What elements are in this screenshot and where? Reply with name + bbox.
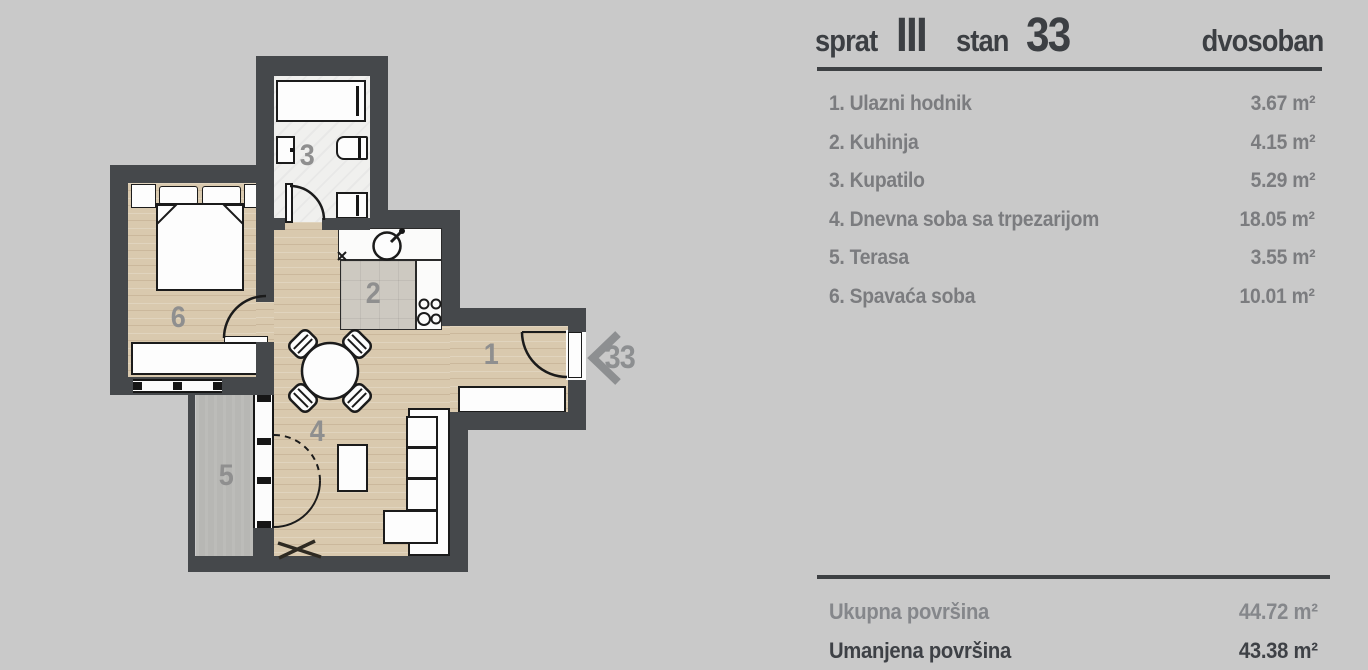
wall-bathroom-top	[256, 56, 388, 76]
room-label-entry: 1	[484, 340, 498, 370]
bathtub-faucet	[356, 86, 359, 116]
sofa-cushion-3	[406, 478, 438, 511]
room-area: 18.05 m²	[1240, 208, 1315, 232]
glass-mullion	[257, 521, 271, 528]
room-row: 5. Terasa 3.55 m²	[817, 239, 1315, 278]
bedroom-window	[133, 379, 222, 393]
totals-divider	[817, 575, 1330, 579]
wall-bedroom-left	[110, 165, 128, 395]
sofa-cushion-1	[406, 416, 438, 448]
totals: Ukupna površina 44.72 m² Umanjena površi…	[817, 592, 1318, 670]
room-name: 2. Kuhinja	[817, 131, 919, 155]
wall-bedroom-top	[110, 165, 274, 183]
room-area: 4.15 m²	[1250, 131, 1315, 155]
wall-living-right	[450, 412, 468, 572]
washing-machine-knob	[290, 148, 294, 152]
room-name: 3. Kupatilo	[817, 169, 925, 193]
room-label-living: 4	[310, 417, 324, 447]
floor-number: III	[896, 8, 926, 63]
sofa-chaise	[383, 510, 438, 544]
room-row: 1. Ulazni hodnik 3.67 m²	[817, 85, 1315, 124]
floor-plan: 3 6 2 1 4 5 33	[0, 0, 700, 665]
kitchen-counter-top	[338, 228, 442, 260]
wall-bathroom-right	[370, 56, 388, 222]
room-label-bathroom: 3	[300, 141, 314, 171]
room-name: 4. Dnevna soba sa trpezarijom	[817, 208, 1099, 232]
room-label-terrace: 5	[219, 461, 233, 491]
wall-bathroom-bottom-right	[322, 218, 370, 230]
wall-entry-right-upper	[568, 308, 586, 332]
total-net-row: Umanjena površina 43.38 m²	[817, 631, 1318, 670]
window-frame-mark	[173, 382, 182, 390]
total-gross-row: Ukupna površina 44.72 m²	[817, 592, 1318, 631]
floor-label: sprat	[815, 23, 877, 59]
total-gross-value: 44.72 m²	[1239, 599, 1318, 625]
wall-kitchen-right	[442, 210, 460, 310]
room-name: 1. Ulazni hodnik	[817, 92, 972, 116]
plan-header: sprat III stan 33 dvosoban	[815, 8, 1323, 64]
room-row: 4. Dnevna soba sa trpezarijom 18.05 m²	[817, 201, 1315, 240]
wall-bathroom-bottom-left	[274, 218, 285, 230]
room-label-kitchen: 2	[366, 279, 380, 309]
terrace-glass-door	[253, 395, 274, 528]
entrance-unit-number: 33	[605, 341, 635, 373]
room-area: 10.01 m²	[1240, 285, 1315, 309]
room-area: 3.67 m²	[1250, 92, 1315, 116]
total-gross-label: Ukupna površina	[817, 599, 989, 625]
double-bed	[156, 203, 244, 291]
apartment-type: dvosoban	[1201, 23, 1323, 59]
bedroom-wardrobe	[131, 342, 262, 375]
wall-glass-lower	[253, 528, 274, 556]
header-divider	[817, 67, 1322, 71]
window-frame-mark	[133, 382, 142, 390]
wall-terrace-left	[188, 395, 195, 556]
nightstand-left	[131, 184, 156, 208]
room-list: 1. Ulazni hodnik 3.67 m² 2. Kuhinja 4.15…	[817, 85, 1315, 316]
bathtub	[276, 80, 366, 122]
kitchen-counter-right	[416, 260, 442, 330]
room-row: 3. Kupatilo 5.29 m²	[817, 162, 1315, 201]
wall-entry-top	[442, 308, 586, 326]
total-net-value: 43.38 m²	[1239, 638, 1318, 664]
unit-number: 33	[1026, 8, 1069, 63]
window-frame-mark	[213, 382, 222, 390]
bathroom-sink	[336, 192, 368, 219]
wall-bottom	[188, 556, 468, 572]
glass-mullion	[257, 438, 271, 445]
room-area: 3.55 m²	[1250, 246, 1315, 270]
glass-mullion	[257, 477, 271, 484]
bathroom-sink-line	[356, 195, 359, 216]
sofa-cushion-2	[406, 447, 438, 479]
unit-label: stan	[956, 23, 1009, 59]
toilet	[336, 136, 368, 160]
room-row: 2. Kuhinja 4.15 m²	[817, 124, 1315, 163]
room-area: 5.29 m²	[1250, 169, 1315, 193]
entrance-door-leaf	[568, 332, 582, 378]
room-label-bedroom: 6	[171, 303, 185, 333]
total-net-label: Umanjena površina	[817, 638, 1011, 664]
coffee-table	[337, 444, 368, 492]
wall-entry-bottom	[450, 412, 586, 430]
entry-closet	[458, 386, 566, 413]
glass-mullion	[257, 395, 271, 402]
room-row: 6. Spavaća soba 10.01 m²	[817, 278, 1315, 317]
toilet-tank-line	[358, 138, 361, 158]
room-name: 6. Spavaća soba	[817, 285, 975, 309]
room-name: 5. Terasa	[817, 246, 909, 270]
